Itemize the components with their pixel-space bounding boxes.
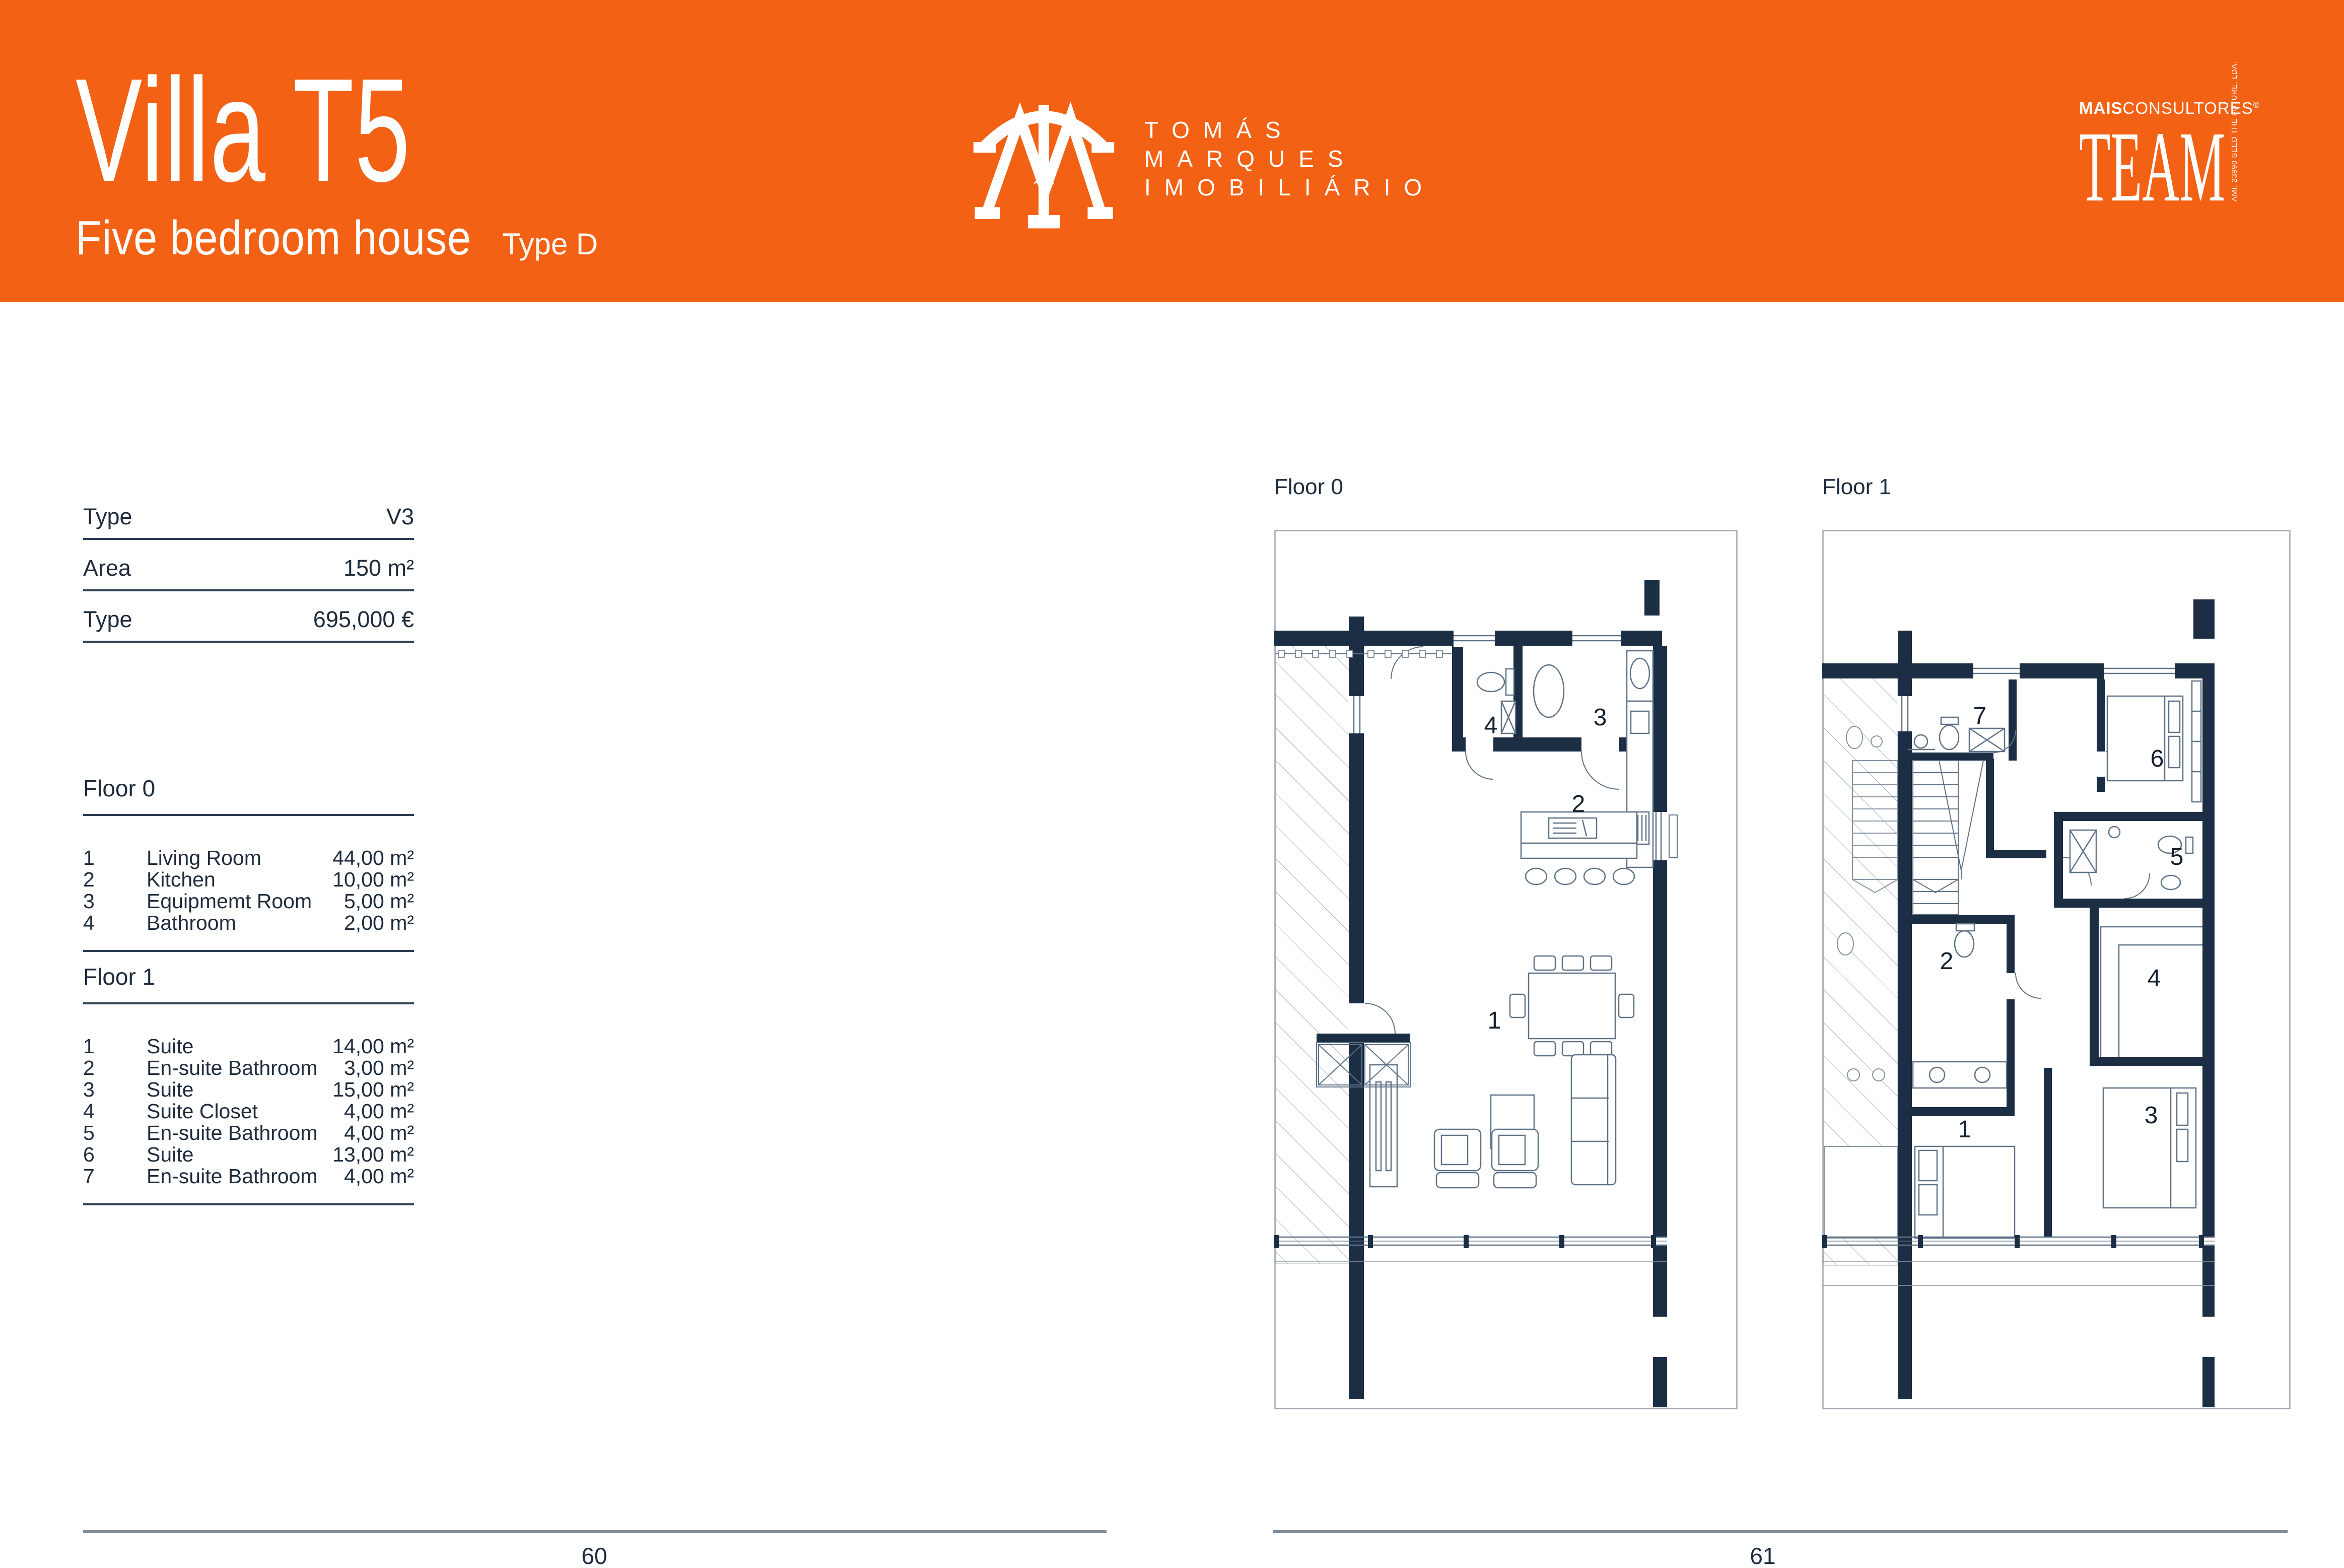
room-label: 1 — [1488, 1007, 1501, 1034]
floor0-room-list: 1 Living Room 44,00 m² 2 Kitchen 10,00 m… — [83, 847, 414, 934]
room-number: 4 — [83, 912, 147, 934]
spec-row-type: Type V3 — [83, 504, 414, 540]
floor1-plan: 1 2 3 4 5 6 7 — [1822, 530, 2291, 1409]
footer-rule-left — [83, 1530, 1107, 1533]
floor0-plan-label: Floor 0 — [1274, 474, 1343, 500]
partner-wordmark-wrap: TEAM AMI: 23990 SEED THE FUTURE, LDA. — [2079, 125, 2245, 204]
tm-monogram-icon — [959, 84, 1128, 230]
header-band: Villa T5 Five bedroom house Type D — [0, 0, 2344, 302]
floor1-section-title: Floor 1 — [83, 963, 414, 990]
room-area: 13,00 m² — [332, 1144, 414, 1166]
room-number: 7 — [83, 1166, 147, 1187]
room-area: 5,00 m² — [344, 891, 414, 912]
terrace-hatch — [1276, 633, 1350, 1264]
room-name: En-suite Bathroom — [147, 1166, 344, 1187]
room-row: 2 Kitchen 10,00 m² — [83, 869, 414, 891]
team-wordmark: TEAM — [2079, 125, 2245, 204]
room-area: 10,00 m² — [332, 869, 414, 891]
room-label: 2 — [1940, 948, 1954, 975]
fixtures — [1370, 651, 1653, 1188]
room-number: 5 — [83, 1122, 147, 1144]
room-label: 5 — [2170, 844, 2184, 870]
partner-logo: MAISCONSULTORES® TEAM AMI: 23990 SEED TH… — [2079, 99, 2260, 204]
room-number: 4 — [83, 1101, 147, 1122]
room-row: 2 En-suite Bathroom 3,00 m² — [83, 1057, 414, 1079]
brochure-page: Villa T5 Five bedroom house Type D — [0, 0, 2344, 1568]
room-name: En-suite Bathroom — [147, 1057, 344, 1079]
spec-label: Type — [83, 504, 132, 530]
team-wordmark-text: TEAM — [2079, 125, 2225, 204]
divider — [83, 1002, 414, 1004]
room-area: 3,00 m² — [344, 1057, 414, 1079]
room-row: 1 Suite 14,00 m² — [83, 1036, 414, 1057]
room-label: 1 — [1958, 1116, 1972, 1143]
room-row: 4 Bathroom 2,00 m² — [83, 912, 414, 934]
room-row: 1 Living Room 44,00 m² — [83, 847, 414, 869]
room-area: 4,00 m² — [344, 1101, 414, 1122]
subtitle-row: Five bedroom house Type D — [76, 211, 598, 266]
room-label: 3 — [1594, 704, 1607, 731]
room-number: 1 — [83, 1036, 147, 1057]
room-row: 3 Suite 15,00 m² — [83, 1079, 414, 1101]
room-row: 7 En-suite Bathroom 4,00 m² — [83, 1166, 414, 1187]
floor0-section: Floor 0 1 Living Room 44,00 m² 2 Kitchen… — [83, 775, 414, 952]
room-name: Living Room — [147, 847, 332, 869]
room-number: 2 — [83, 869, 147, 891]
spec-label: Type — [83, 606, 132, 633]
room-number: 3 — [83, 891, 147, 912]
divider — [83, 1203, 414, 1205]
room-name: Suite Closet — [147, 1101, 344, 1122]
room-row: 4 Suite Closet 4,00 m² — [83, 1101, 414, 1122]
room-label: 6 — [2151, 745, 2164, 772]
room-label: 7 — [1973, 703, 1987, 729]
spec-value: 695,000 € — [313, 606, 414, 633]
floor0-section-title: Floor 0 — [83, 775, 414, 802]
floor1-section: Floor 1 1 Suite 14,00 m² 2 En-suite Bath… — [83, 963, 414, 1205]
room-row: 5 En-suite Bathroom 4,00 m² — [83, 1122, 414, 1144]
room-area: 2,00 m² — [344, 912, 414, 934]
room-name: Kitchen — [147, 869, 332, 891]
floor1-plan-label: Floor 1 — [1822, 474, 1891, 500]
room-area: 15,00 m² — [332, 1079, 414, 1101]
room-label: 3 — [2145, 1102, 2158, 1129]
page-subtitle: Five bedroom house — [76, 211, 471, 266]
room-number: 1 — [83, 847, 147, 869]
registered-icon: ® — [2253, 100, 2260, 110]
room-area: 4,00 m² — [344, 1122, 414, 1144]
room-area: 14,00 m² — [332, 1036, 414, 1057]
room-number: 2 — [83, 1057, 147, 1079]
floor1-room-list: 1 Suite 14,00 m² 2 En-suite Bathroom 3,0… — [83, 1036, 414, 1187]
page-number-right: 61 — [1728, 1542, 1798, 1568]
title-block: Villa T5 Five bedroom house Type D — [76, 54, 598, 266]
divider — [83, 950, 414, 952]
room-name: Bathroom — [147, 912, 344, 934]
room-number: 6 — [83, 1144, 147, 1166]
page-subtitle-tag: Type D — [502, 227, 598, 261]
room-label: 2 — [1572, 791, 1585, 817]
room-name: Suite — [147, 1079, 332, 1101]
brand-line-2: MARQUES — [1144, 145, 1435, 173]
room-number: 3 — [83, 1079, 147, 1101]
spec-value: 150 m² — [343, 555, 414, 581]
partner-side-text: AMI: 23990 SEED THE FUTURE, LDA. — [2230, 126, 2239, 201]
footer-rule-right — [1273, 1530, 2288, 1533]
spec-label: Area — [83, 555, 131, 581]
room-name: Suite — [147, 1036, 332, 1057]
page-title: Villa T5 — [76, 54, 431, 206]
room-row: 6 Suite 13,00 m² — [83, 1144, 414, 1166]
room-label: 4 — [1484, 712, 1498, 739]
room-name: En-suite Bathroom — [147, 1122, 344, 1144]
room-area: 4,00 m² — [344, 1166, 414, 1187]
brand-line-3: IMOBILIÁRIO — [1144, 173, 1435, 202]
room-name: Suite — [147, 1144, 332, 1166]
page-number-left: 60 — [559, 1542, 630, 1568]
room-area: 44,00 m² — [332, 847, 414, 869]
brand-wordmark: TOMÁS MARQUES IMOBILIÁRIO — [1144, 116, 1435, 202]
spec-table: Type V3 Area 150 m² Type 695,000 € — [83, 504, 414, 643]
brand-line-1: TOMÁS — [1144, 116, 1435, 145]
spec-value: V3 — [386, 504, 414, 530]
spec-row-price: Type 695,000 € — [83, 591, 414, 643]
room-name: Equipmemt Room — [147, 891, 344, 912]
partner-brand-bold: MAIS — [2079, 99, 2123, 117]
room-label: 4 — [2148, 965, 2161, 992]
room-row: 3 Equipmemt Room 5,00 m² — [83, 891, 414, 912]
spec-row-area: Area 150 m² — [83, 540, 414, 591]
floor0-plan: 1 2 3 4 — [1274, 530, 1738, 1409]
divider — [83, 814, 414, 816]
